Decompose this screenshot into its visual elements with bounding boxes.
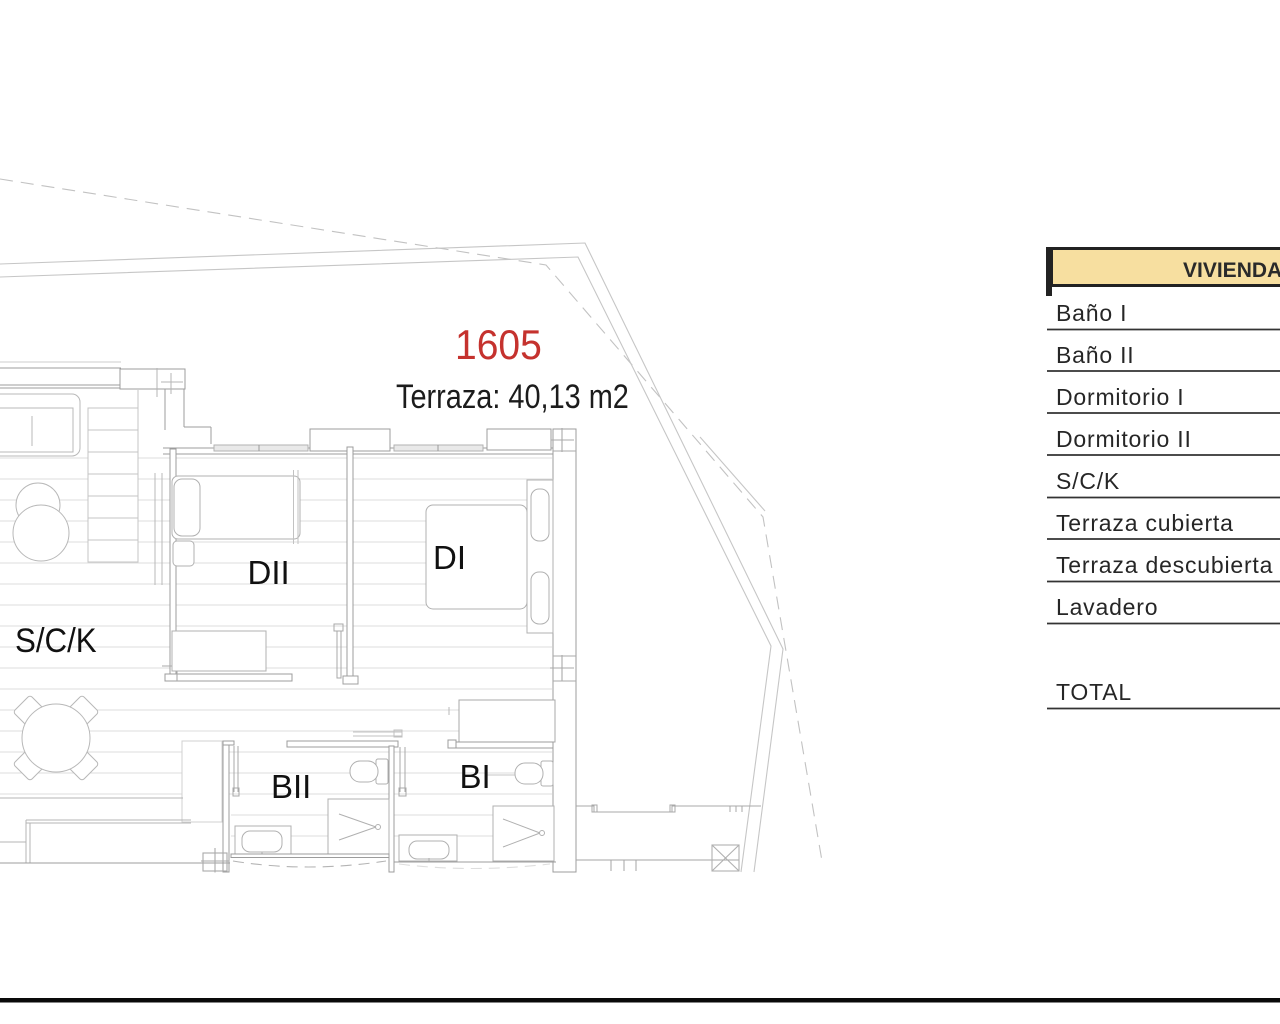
svg-text:VIVIENDA: VIVIENDA [1183, 259, 1280, 282]
svg-text:Dormitorio I: Dormitorio I [1056, 384, 1184, 410]
svg-text:Terraza descubierta: Terraza descubierta [1056, 552, 1273, 578]
svg-text:TOTAL: TOTAL [1056, 679, 1132, 705]
svg-text:Lavadero: Lavadero [1056, 594, 1158, 620]
svg-text:DI: DI [433, 539, 466, 576]
svg-text:BI: BI [460, 758, 491, 795]
svg-text:S/C/K: S/C/K [15, 621, 97, 660]
svg-text:BII: BII [271, 768, 311, 805]
svg-text:DII: DII [248, 554, 290, 591]
svg-text:Dormitorio II: Dormitorio II [1056, 426, 1192, 452]
svg-text:1605: 1605 [455, 321, 542, 369]
svg-text:S/C/K: S/C/K [1056, 468, 1120, 494]
svg-text:Terraza cubierta: Terraza cubierta [1056, 510, 1234, 536]
svg-text:Baño I: Baño I [1056, 300, 1127, 326]
svg-text:Baño II: Baño II [1056, 342, 1135, 368]
svg-text:Terraza: 40,13 m2: Terraza: 40,13 m2 [396, 377, 629, 416]
